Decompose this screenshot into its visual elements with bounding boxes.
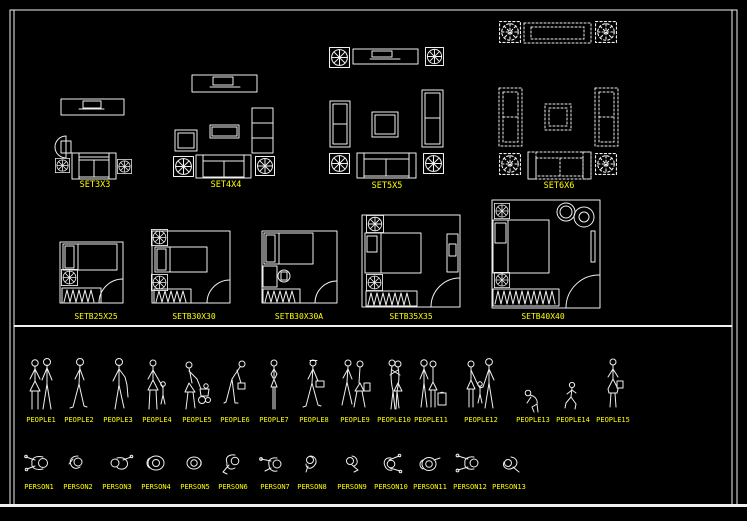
label-setb30x30a: SETB30X30A [275, 312, 323, 321]
people-elevation-figures [30, 359, 623, 413]
person-plan-top-round-small [187, 457, 201, 469]
man-with-briefcase-figure [303, 360, 324, 407]
person-plan-top-round [147, 456, 164, 470]
label-people12: PEOPLE12 [464, 416, 498, 424]
person-plan-arms-forward [384, 454, 402, 473]
man-bending-with-bag-figure [224, 361, 245, 403]
label-people1: PEOPLE1 [26, 416, 56, 424]
woman-with-stroller-figure [185, 362, 211, 409]
label-set3x3: SET3X3 [80, 180, 111, 190]
label-people4: PEOPLE4 [142, 416, 172, 424]
label-person6: PERSON6 [218, 483, 248, 491]
label-people13: PEOPLE13 [516, 416, 550, 424]
couple-standing-figure [30, 359, 52, 410]
label-set6x6: SET6X6 [544, 181, 575, 191]
person-plan-arms-spread [456, 454, 478, 472]
family-with-child-figure [467, 359, 494, 408]
label-set5x5: SET5X5 [372, 181, 403, 191]
label-person9: PERSON9 [337, 483, 367, 491]
bedroom-set-40x40-drawing [492, 200, 600, 308]
sofa-set-6x6-drawing [499, 22, 618, 179]
person-plan-arm-bent [223, 455, 239, 474]
sheet-border-frame [0, 10, 747, 507]
person-plan-seated [69, 456, 82, 468]
person-plan-reaching [25, 455, 48, 471]
bedroom-set-30x30a-drawing [262, 231, 337, 303]
sofa-set-4x4-drawing [174, 75, 275, 178]
label-people7: PEOPLE7 [259, 416, 289, 424]
label-people14: PEOPLE14 [556, 416, 590, 424]
label-person2: PERSON2 [63, 483, 93, 491]
label-person8: PERSON8 [297, 483, 327, 491]
woman-with-bag-figure [608, 359, 623, 407]
person-plan-arm-out [111, 455, 133, 469]
label-people3: PEOPLE3 [103, 416, 133, 424]
couple-with-luggage-figure [420, 360, 446, 407]
sofa-set-5x5-drawing [330, 47, 444, 178]
cad-block-sheet: SET3X3 SET4X4 SET5X5 SET6X6 SETB25X25 SE… [0, 0, 747, 521]
label-person5: PERSON5 [180, 483, 210, 491]
label-people5: PEOPLE5 [182, 416, 212, 424]
label-person10: PERSON10 [374, 483, 408, 491]
person-plan-view-figures [25, 454, 519, 474]
label-person11: PERSON11 [413, 483, 447, 491]
bedroom-set-30x30-drawing [151, 229, 230, 303]
person-plan-curled [306, 456, 316, 472]
man-walking-figure [70, 359, 87, 409]
man-standing-figure [113, 359, 128, 410]
label-person7: PERSON7 [260, 483, 290, 491]
bedroom-set-25x25-drawing [60, 242, 123, 303]
label-people6: PEOPLE6 [220, 416, 250, 424]
label-people11: PEOPLE11 [414, 416, 448, 424]
section-divider-line [14, 325, 732, 327]
cad-drawing-canvas [0, 0, 747, 521]
person-plan-pointing [260, 458, 281, 472]
person-plan-turning [347, 456, 359, 472]
child-running-figure [565, 382, 576, 409]
woman-with-child-figure [148, 360, 165, 409]
bedroom-set-35x35-drawing [362, 215, 460, 307]
couple-walking-figure [342, 360, 370, 407]
label-person13: PERSON13 [492, 483, 526, 491]
label-setb25x25: SETB25X25 [74, 312, 117, 321]
label-setb30x30: SETB30X30 [172, 312, 215, 321]
label-people9: PEOPLE9 [340, 416, 370, 424]
child-crouching-figure [525, 390, 538, 412]
label-person3: PERSON3 [102, 483, 132, 491]
sofa-set-3x3-drawing [55, 99, 132, 179]
label-person12: PERSON12 [453, 483, 487, 491]
label-person1: PERSON1 [24, 483, 54, 491]
label-people2: PEOPLE2 [64, 416, 94, 424]
woman-standing-figure [271, 360, 277, 409]
label-setb40x40: SETB40X40 [521, 312, 564, 321]
person-plan-lying [504, 457, 519, 472]
person-plan-round-arm [420, 458, 440, 471]
label-people8: PEOPLE8 [299, 416, 329, 424]
label-people15: PEOPLE15 [596, 416, 630, 424]
label-set4x4: SET4X4 [211, 180, 242, 190]
label-people10: PEOPLE10 [377, 416, 411, 424]
couple-embracing-figure [389, 360, 402, 409]
label-person4: PERSON4 [141, 483, 171, 491]
label-setb35x35: SETB35X35 [389, 312, 432, 321]
